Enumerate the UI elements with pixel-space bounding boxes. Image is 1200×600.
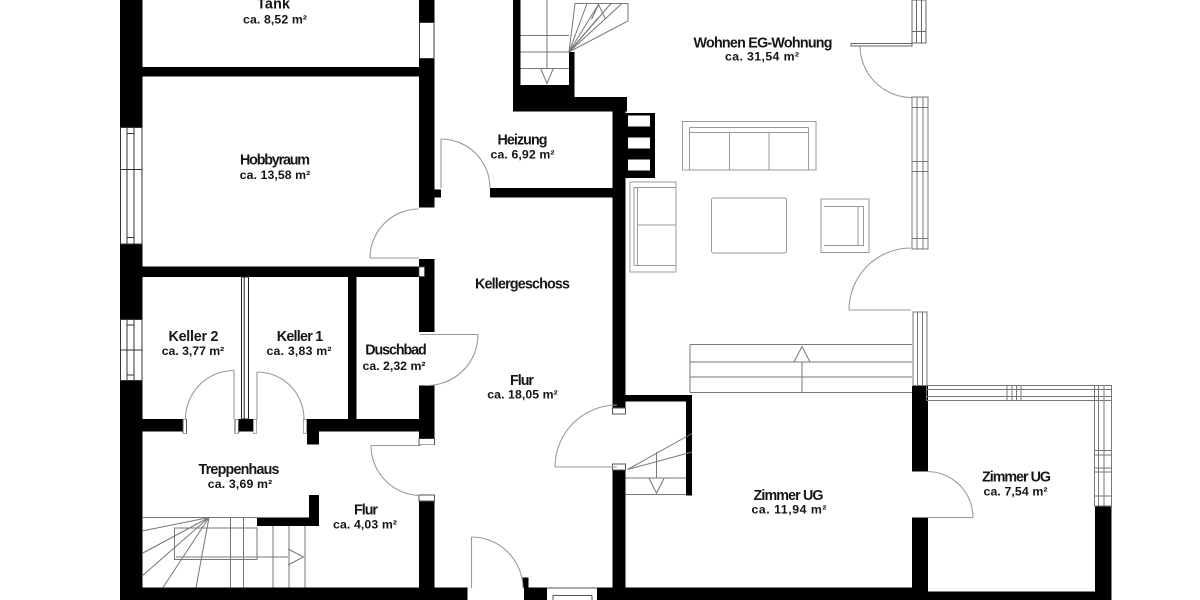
svg-text:Hobbyraum: Hobbyraum xyxy=(240,153,310,169)
svg-text:ca. 7,54 m²: ca. 7,54 m² xyxy=(984,485,1048,499)
svg-text:Zimmer UG: Zimmer UG xyxy=(982,470,1051,486)
svg-text:Keller 2: Keller 2 xyxy=(169,329,219,345)
svg-text:ca. 2,32 m²: ca. 2,32 m² xyxy=(363,359,426,373)
svg-text:Tank: Tank xyxy=(257,0,290,13)
svg-text:ca. 3,83 m²: ca. 3,83 m² xyxy=(267,344,332,358)
svg-text:ca. 4,03 m²: ca. 4,03 m² xyxy=(333,518,397,532)
svg-text:Flur: Flur xyxy=(354,503,378,519)
svg-text:Treppenhaus: Treppenhaus xyxy=(199,462,280,478)
svg-text:Kellergeschoss: Kellergeschoss xyxy=(475,277,570,293)
svg-text:ca. 8,52 m²: ca. 8,52 m² xyxy=(243,13,307,27)
svg-text:Heizung: Heizung xyxy=(498,133,548,149)
svg-text:ca. 31,54 m²: ca. 31,54 m² xyxy=(725,50,799,64)
svg-text:ca. 18,05 m²: ca. 18,05 m² xyxy=(487,388,558,402)
svg-text:ca. 11,94 m²: ca. 11,94 m² xyxy=(752,503,827,517)
svg-text:ca. 13,58 m²: ca. 13,58 m² xyxy=(240,168,311,182)
svg-text:ca. 3,69 m²: ca. 3,69 m² xyxy=(208,477,273,491)
svg-text:ca. 3,77 m²: ca. 3,77 m² xyxy=(162,344,225,358)
svg-text:Keller 1: Keller 1 xyxy=(277,329,324,345)
svg-text:ca. 6,92 m²: ca. 6,92 m² xyxy=(491,148,555,162)
svg-text:Duschbad: Duschbad xyxy=(365,343,427,359)
